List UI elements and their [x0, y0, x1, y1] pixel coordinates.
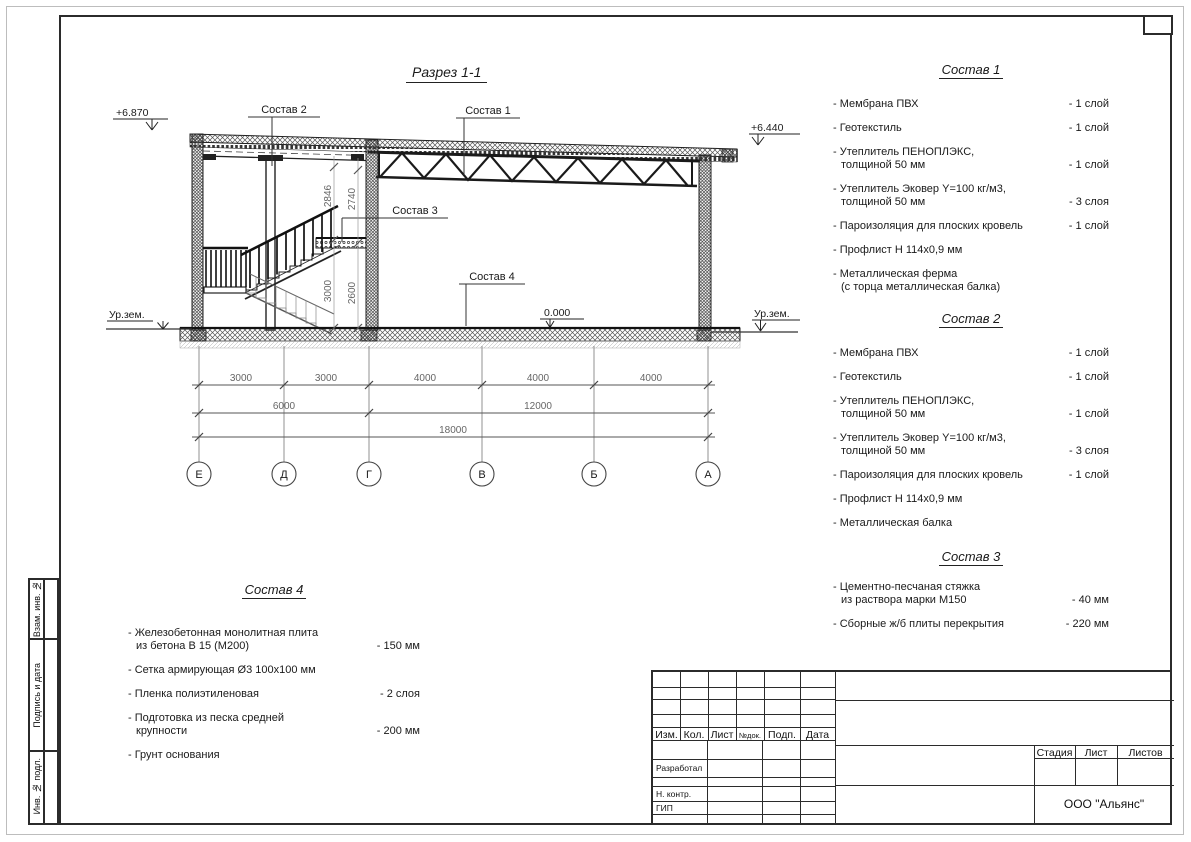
dim-label: 3000 — [323, 279, 334, 302]
tb-col-header: Дата — [800, 729, 835, 741]
list-item: - Утеплитель Эковер Y=100 кг/м3, толщино… — [833, 432, 1109, 458]
composition-list-4: Состав 4 - Железобетонная монолитная пли… — [128, 582, 420, 773]
list-item: - Мембрана ПВХ- 1 слой — [833, 347, 1109, 360]
list-item: - Пароизоляция для плоских кровель- 1 сл… — [833, 220, 1109, 233]
tb-col-header: Изм. — [653, 729, 680, 741]
tb-col-header: Кол. — [680, 729, 708, 741]
list-item: - Металлическая ферма (с торца металличе… — [833, 268, 1109, 294]
tb-col-header: Лист — [708, 729, 736, 741]
tb-role: Разработал — [656, 763, 702, 773]
elevation-label: +6.870 — [116, 107, 149, 119]
axis-label: Г — [366, 469, 372, 481]
dim-label: 6000 — [273, 401, 296, 412]
elevation-label: +6.440 — [751, 122, 784, 134]
tb-stage-header: Листов — [1117, 747, 1174, 759]
dim-label: 12000 — [524, 401, 552, 412]
list-item: - Геотекстиль- 1 слой — [833, 371, 1109, 384]
axis-label: А — [704, 469, 712, 481]
list-item: - Профлист Н 114х0,9 мм — [833, 493, 1109, 506]
list-item: - Грунт основания — [128, 749, 420, 762]
callout-label: Состав 3 — [392, 205, 438, 217]
list-item: - Железобетонная монолитная плита из бет… — [128, 627, 420, 653]
list-item: - Мембрана ПВХ- 1 слой — [833, 98, 1109, 111]
list-item: - Сборные ж/б плиты перекрытия- 220 мм — [833, 618, 1109, 631]
list-item: - Сетка армирующая Ø3 100х100 мм — [128, 664, 420, 677]
stamp-label: Взам. инв. № — [32, 581, 42, 637]
ground-level-label: Ур.зем. — [109, 309, 145, 321]
list-item: - Утеплитель ПЕНОПЛЭКС, толщиной 50 мм- … — [833, 395, 1109, 421]
dim-label: 4000 — [640, 373, 663, 384]
axis-label: Д — [280, 469, 288, 481]
elevation-label: 0.000 — [544, 307, 570, 319]
axis-label: В — [478, 469, 485, 481]
tb-role: ГИП — [656, 803, 673, 813]
stamp-label: Подпись и дата — [32, 663, 42, 728]
composition-title: Состав 1 — [833, 62, 1109, 77]
composition-title: Состав 3 — [833, 549, 1109, 564]
section-title: Разрез 1-1 — [406, 64, 487, 83]
tb-col-header: №док. — [736, 731, 764, 740]
list-item: - Пароизоляция для плоских кровель- 1 сл… — [833, 469, 1109, 482]
tb-col-header: Подп. — [764, 729, 800, 741]
list-item: - Геотекстиль- 1 слой — [833, 122, 1109, 135]
composition-title: Состав 2 — [833, 311, 1109, 326]
dim-label: 18000 — [439, 425, 467, 436]
list-item: - Утеплитель Эковер Y=100 кг/м3, толщино… — [833, 183, 1109, 209]
dim-label: 3000 — [230, 373, 253, 384]
tb-stage-header: Стадия — [1034, 747, 1075, 759]
ground-level-label: Ур.зем. — [754, 308, 790, 320]
composition-title: Состав 4 — [128, 582, 420, 597]
dim-label: 2846 — [323, 184, 334, 207]
composition-list-2: Состав 2 - Мембрана ПВХ- 1 слой - Геотек… — [833, 311, 1109, 541]
walls — [192, 134, 711, 330]
list-item: - Пленка полиэтиленовая- 2 слоя — [128, 688, 420, 701]
callout-label: Состав 2 — [261, 104, 307, 116]
horizontal-dimensions: 3000 3000 4000 4000 4000 6000 12000 1800… — [192, 346, 715, 462]
composition-list-3: Состав 3 - Цементно-песчаная стяжка из р… — [833, 549, 1109, 642]
dim-label: 2740 — [347, 187, 358, 210]
dim-label: 3000 — [315, 373, 338, 384]
title-block: Изм. Кол. Лист №док. Подп. Дата Разработ… — [651, 670, 1172, 825]
tb-company: ООО "Альянс" — [1034, 785, 1174, 823]
callout-label: Состав 4 — [469, 271, 515, 283]
dim-label: 2600 — [347, 281, 358, 304]
list-item: - Подготовка из песка средней крупности-… — [128, 712, 420, 738]
tb-role: Н. контр. — [656, 789, 691, 799]
dim-label: 4000 — [527, 373, 550, 384]
axis-bubbles: Е Д Г В Б А — [187, 462, 720, 486]
dim-label: 4000 — [414, 373, 437, 384]
list-item: - Профлист Н 114х0,9 мм — [833, 244, 1109, 257]
axis-label: Е — [195, 469, 202, 481]
axis-label: Б — [590, 469, 597, 481]
tb-stage-header: Лист — [1075, 747, 1117, 759]
stamp-label: Инв. № подл. — [32, 758, 42, 814]
drawing-sheet: +6.870 +6.440 0.000 Ур.зем. Ур.зем. Сост… — [0, 0, 1191, 842]
callout-label: Состав 1 — [465, 105, 511, 117]
composition-list-1: Состав 1 - Мембрана ПВХ- 1 слой - Геотек… — [833, 62, 1109, 305]
ground-floor-slab — [106, 328, 798, 348]
list-item: - Цементно-песчаная стяжка из раствора м… — [833, 581, 1109, 607]
list-item: - Металлическая балка — [833, 517, 1109, 530]
left-stamp-column: Взам. инв. № Подпись и дата Инв. № подл. — [28, 578, 59, 825]
list-item: - Утеплитель ПЕНОПЛЭКС, толщиной 50 мм- … — [833, 146, 1109, 172]
